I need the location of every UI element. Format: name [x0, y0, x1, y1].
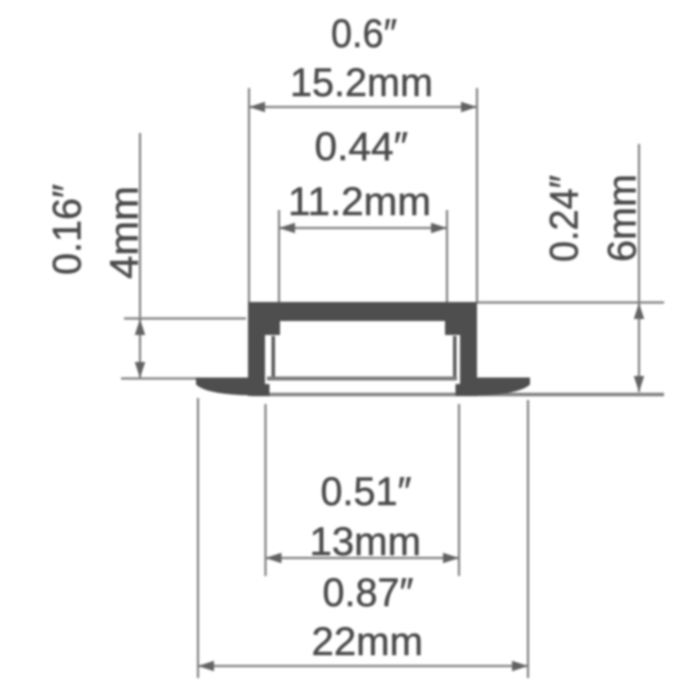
svg-text:22mm: 22mm	[312, 620, 424, 664]
svg-text:0.51″: 0.51″	[321, 470, 412, 514]
svg-text:6mm: 6mm	[601, 174, 645, 262]
svg-text:0.44″: 0.44″	[315, 125, 409, 169]
svg-text:0.16″: 0.16″	[46, 184, 90, 275]
svg-text:4mm: 4mm	[103, 186, 147, 279]
svg-text:11.2mm: 11.2mm	[288, 180, 431, 224]
svg-text:0.24″: 0.24″	[543, 175, 587, 262]
svg-text:0.87″: 0.87″	[323, 571, 414, 615]
svg-text:15.2mm: 15.2mm	[290, 61, 433, 105]
svg-text:0.6″: 0.6″	[331, 12, 397, 56]
svg-text:13mm: 13mm	[310, 520, 422, 564]
